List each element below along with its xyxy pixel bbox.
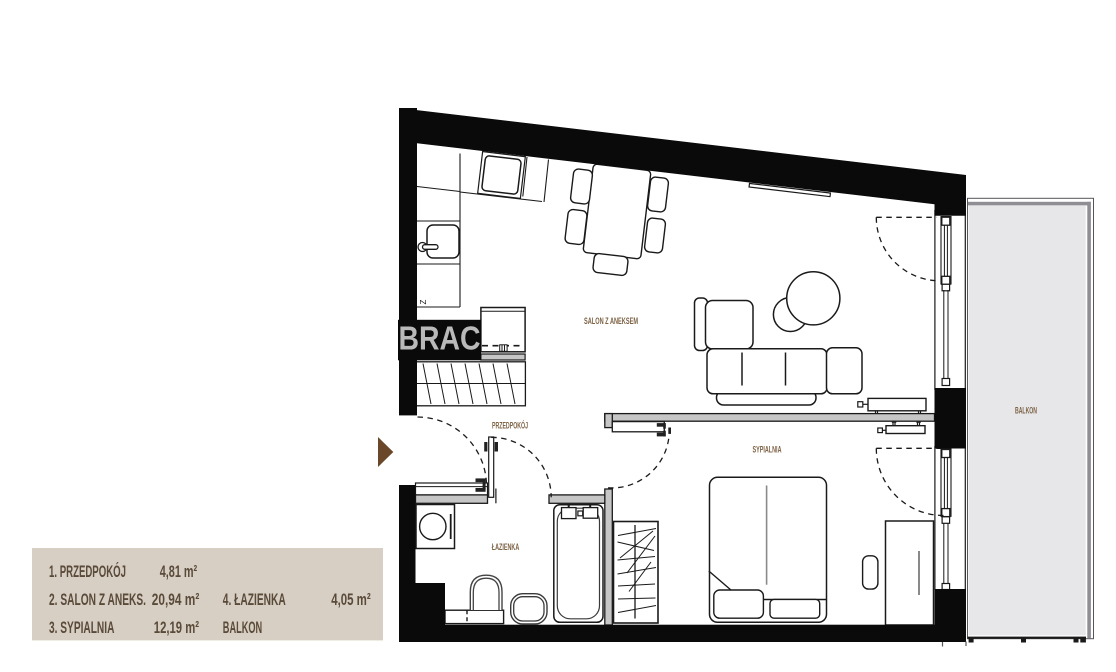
svg-text:ŁAZIENKA: ŁAZIENKA — [492, 542, 520, 553]
svg-text:SALON Z ANEKSEM: SALON Z ANEKSEM — [584, 316, 638, 327]
svg-text:2. SALON Z ANEKS.: 2. SALON Z ANEKS. — [49, 591, 146, 609]
svg-text:BRAC: BRAC — [399, 319, 481, 356]
svg-text:12,19 m²: 12,19 m² — [154, 619, 200, 637]
svg-text:PRZEDPOKÓJ: PRZEDPOKÓJ — [492, 419, 528, 431]
svg-text:BALKON: BALKON — [1015, 406, 1037, 417]
svg-text:BALKON: BALKON — [223, 619, 262, 637]
svg-text:1. PRZEDPOKÓJ: 1. PRZEDPOKÓJ — [49, 562, 126, 581]
svg-text:4. ŁAZIENKA: 4. ŁAZIENKA — [223, 591, 286, 609]
svg-text:3. SYPIALNIA: 3. SYPIALNIA — [49, 619, 114, 637]
svg-text:4,81 m²: 4,81 m² — [160, 563, 198, 581]
svg-text:Z: Z — [419, 299, 428, 304]
svg-text:SYPIALNIA: SYPIALNIA — [753, 445, 782, 456]
svg-text:4,05 m²: 4,05 m² — [331, 591, 371, 609]
svg-text:20,94 m²: 20,94 m² — [152, 591, 200, 609]
